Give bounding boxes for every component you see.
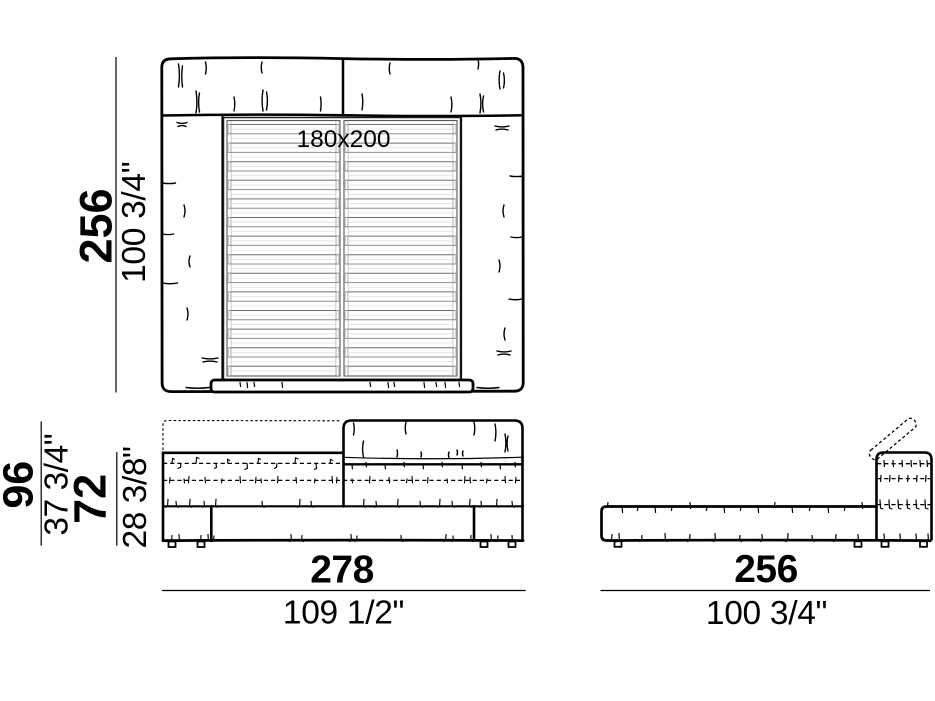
svg-text:96: 96 (0, 461, 43, 509)
svg-text:109 1/2": 109 1/2" (283, 595, 404, 632)
svg-text:180x200: 180x200 (296, 126, 390, 153)
svg-text:100 3/4": 100 3/4" (706, 595, 827, 632)
svg-text:256: 256 (734, 548, 798, 591)
svg-text:72: 72 (65, 474, 116, 524)
svg-text:278: 278 (310, 549, 374, 592)
svg-text:256: 256 (71, 188, 122, 263)
svg-text:28 3/8": 28 3/8" (117, 447, 154, 549)
svg-text:100 3/4": 100 3/4" (116, 162, 153, 283)
